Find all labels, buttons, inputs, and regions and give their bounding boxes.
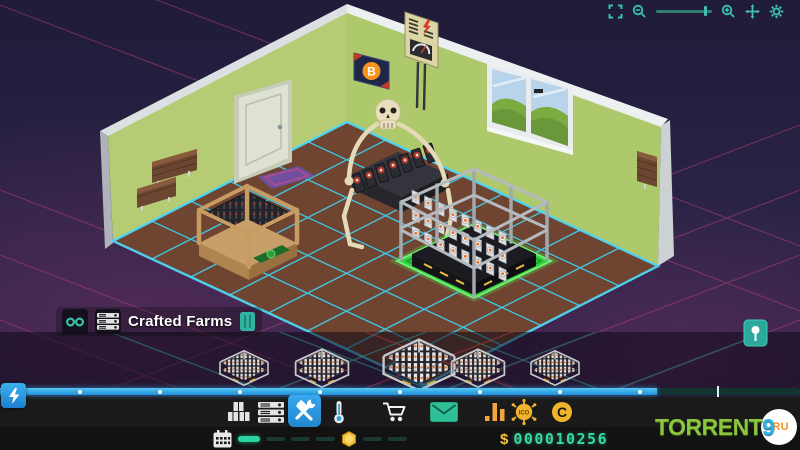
mail-button[interactable]: [426, 397, 462, 427]
pip-empty: [316, 437, 335, 441]
pip-empty: [388, 437, 407, 441]
ico-virus-icon: ICO: [509, 398, 539, 426]
power-bar: [0, 385, 800, 397]
zoom-out-icon[interactable]: [632, 4, 647, 19]
milestone-dot: [318, 390, 322, 394]
milestone-dot: [638, 390, 642, 394]
fullscreen-icon[interactable]: [608, 4, 623, 19]
craft-button[interactable]: [286, 397, 322, 427]
farm-title: Crafted Farms: [128, 313, 232, 330]
thermometer-icon: [329, 400, 349, 424]
bitcoin-b: B: [367, 65, 376, 79]
ico-label: ICO: [519, 411, 530, 417]
ico-button[interactable]: ICO: [506, 397, 542, 427]
temperature-button[interactable]: [321, 397, 357, 427]
pan-icon[interactable]: [745, 4, 760, 19]
farm-panel-icon[interactable]: [239, 311, 256, 332]
settings-gear-icon[interactable]: [769, 4, 784, 19]
money-counter: $ 000010256: [500, 430, 608, 448]
milestone-dot: [158, 390, 162, 394]
exchange-button[interactable]: C: [544, 397, 580, 427]
energy-badge[interactable]: [1, 383, 26, 408]
cable: [417, 62, 418, 108]
game-screen: B: [0, 0, 800, 450]
milestone-dot: [478, 390, 482, 394]
milestone-dot: [558, 390, 562, 394]
rigs-button[interactable]: [253, 397, 289, 427]
hammer-wrench-icon: [291, 397, 317, 423]
pip-empty: [266, 437, 285, 441]
milestone-dot: [238, 390, 242, 394]
door-handle: [278, 125, 283, 130]
cable: [424, 64, 425, 110]
milestone-dot: [398, 390, 402, 394]
watermark-text: TORRENT9: [655, 414, 775, 441]
zoom-slider[interactable]: [656, 5, 712, 17]
farm-label: Crafted Farms: [56, 307, 262, 336]
map-controls: [608, 3, 784, 19]
calendar-icon[interactable]: [213, 430, 232, 448]
progress-pips: [213, 427, 407, 450]
coin-letter: C: [557, 404, 567, 420]
coin-icon: C: [550, 400, 574, 424]
shop-button[interactable]: [376, 397, 412, 427]
pin-button[interactable]: [744, 320, 767, 346]
mail-icon: [430, 402, 458, 422]
milestone-tick: [717, 386, 719, 397]
zoom-in-icon[interactable]: [721, 4, 736, 19]
gem-icon: [341, 431, 357, 447]
pip-empty: [363, 437, 382, 441]
currency-symbol: $: [500, 431, 508, 448]
bar-chart-icon: [485, 402, 505, 422]
storage-button[interactable]: [221, 397, 257, 427]
lightning-icon: [6, 387, 22, 405]
pip-filled: [238, 436, 260, 442]
window-latch: [534, 89, 543, 93]
server-rack-icon: [258, 402, 284, 423]
watermark: .RU TORRENT9: [655, 406, 800, 450]
pip-empty: [291, 437, 310, 441]
zoom-slider-handle[interactable]: [704, 6, 707, 16]
cart-icon: [382, 401, 407, 423]
milestone-dot: [78, 390, 82, 394]
mining-rack-icon: [95, 309, 121, 334]
money-value: 000010256: [513, 430, 608, 448]
crates-icon: [227, 401, 251, 423]
infinity-icon: [62, 309, 88, 334]
